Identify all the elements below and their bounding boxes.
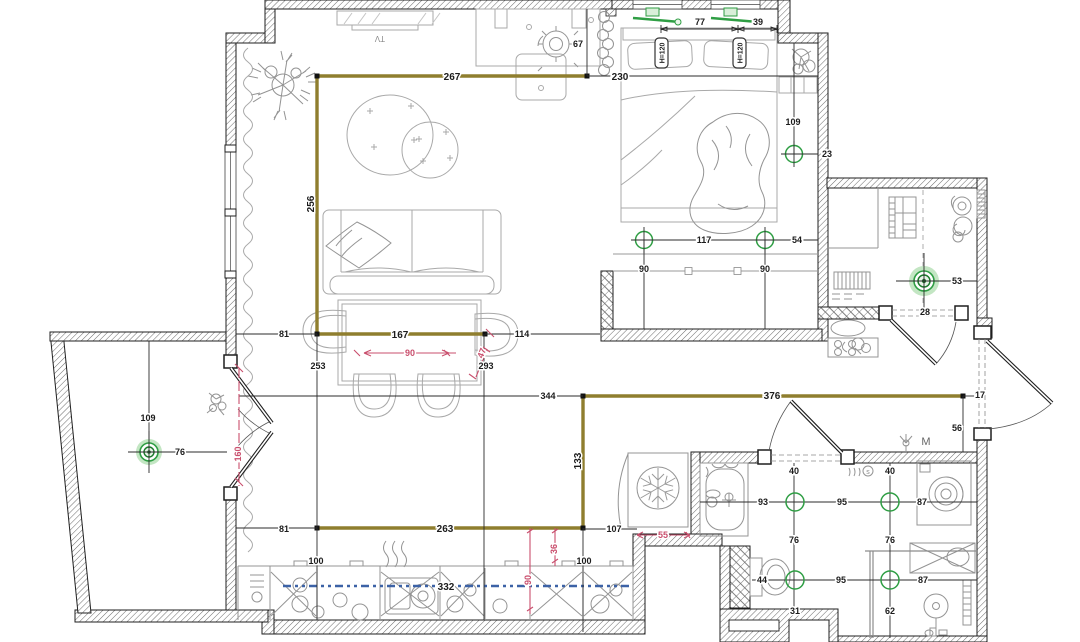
svg-text:114: 114 xyxy=(515,329,530,339)
svg-text:263: 263 xyxy=(437,524,454,535)
svg-text:90: 90 xyxy=(405,348,415,358)
svg-text:40: 40 xyxy=(789,466,799,476)
svg-text:s: s xyxy=(866,469,870,476)
svg-text:76: 76 xyxy=(175,447,185,457)
svg-text:100: 100 xyxy=(308,556,323,566)
svg-text:256: 256 xyxy=(306,195,317,212)
svg-text:117: 117 xyxy=(697,235,712,245)
svg-text:31: 31 xyxy=(790,606,800,616)
svg-text:39: 39 xyxy=(753,17,763,27)
svg-text:53: 53 xyxy=(952,276,962,286)
svg-text:76: 76 xyxy=(885,535,895,545)
svg-text:133: 133 xyxy=(573,452,584,469)
svg-text:90: 90 xyxy=(760,264,770,274)
svg-text:81: 81 xyxy=(279,524,289,534)
svg-text:293: 293 xyxy=(478,361,493,371)
svg-text:93: 93 xyxy=(758,497,768,507)
svg-text:109: 109 xyxy=(140,413,155,423)
svg-text:267: 267 xyxy=(444,72,461,83)
svg-text:107: 107 xyxy=(606,524,621,534)
svg-text:H=120: H=120 xyxy=(738,42,745,63)
svg-text:376: 376 xyxy=(764,391,781,402)
svg-text:76: 76 xyxy=(789,535,799,545)
svg-text:67: 67 xyxy=(573,39,583,49)
svg-text:H=120: H=120 xyxy=(660,42,667,63)
svg-text:167: 167 xyxy=(392,330,409,341)
svg-text:230: 230 xyxy=(612,72,629,83)
svg-text:100: 100 xyxy=(576,556,591,566)
svg-text:87: 87 xyxy=(918,575,928,585)
svg-text:344: 344 xyxy=(540,391,555,401)
svg-text:77: 77 xyxy=(695,17,705,27)
svg-text:56: 56 xyxy=(952,423,962,433)
svg-text:160: 160 xyxy=(233,446,243,461)
svg-text:95: 95 xyxy=(837,497,847,507)
svg-text:62: 62 xyxy=(885,606,895,616)
svg-text:54: 54 xyxy=(792,235,802,245)
svg-text:17: 17 xyxy=(975,390,985,400)
svg-text:TV: TV xyxy=(374,34,385,43)
svg-text:36: 36 xyxy=(549,544,559,554)
svg-text:40: 40 xyxy=(885,466,895,476)
svg-text:95: 95 xyxy=(836,575,846,585)
svg-text:55: 55 xyxy=(658,530,668,540)
svg-text:87: 87 xyxy=(917,497,927,507)
svg-text:253: 253 xyxy=(310,361,325,371)
svg-text:109: 109 xyxy=(785,117,800,127)
svg-text:90: 90 xyxy=(639,264,649,274)
svg-text:28: 28 xyxy=(920,307,930,317)
svg-text:23: 23 xyxy=(822,149,832,159)
svg-text:44: 44 xyxy=(757,575,767,585)
svg-text:81: 81 xyxy=(279,329,289,339)
svg-text:90: 90 xyxy=(523,575,533,585)
svg-text:332: 332 xyxy=(438,582,455,593)
svg-text:M: M xyxy=(921,436,930,448)
